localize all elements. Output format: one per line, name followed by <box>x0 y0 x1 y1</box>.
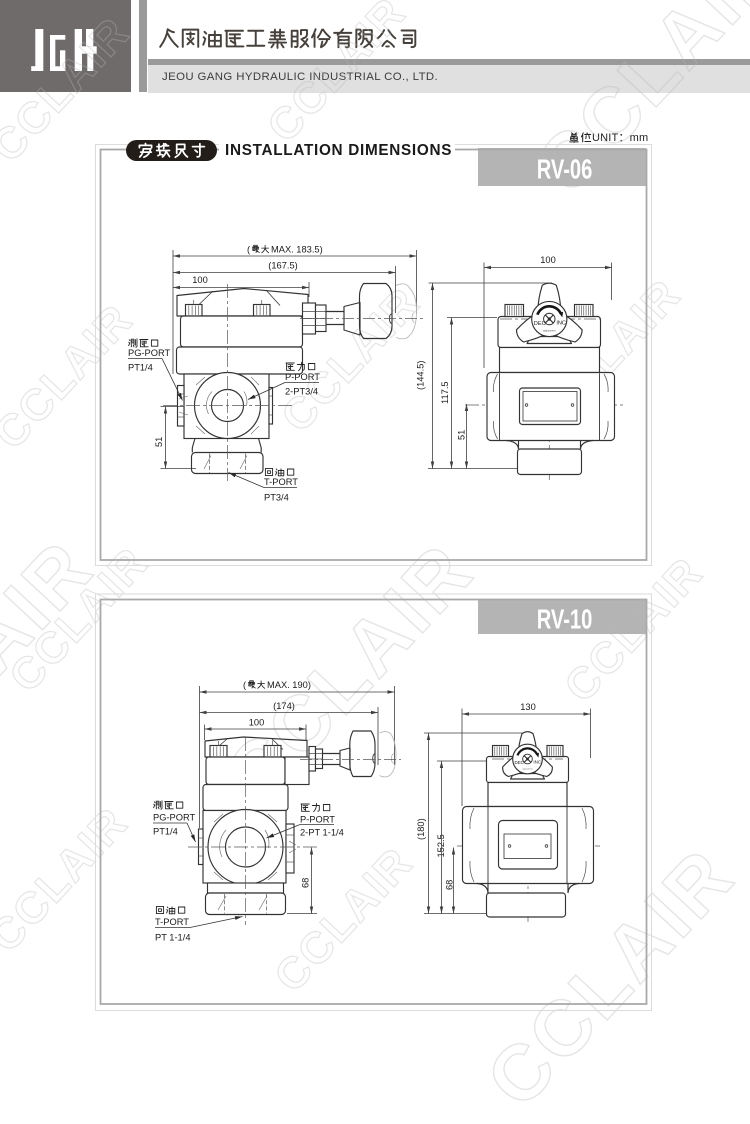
svg-text:2-PT 1-1/4: 2-PT 1-1/4 <box>300 828 344 838</box>
svg-text:P-PORT: P-PORT <box>300 815 335 825</box>
svg-text:68: 68 <box>445 880 455 890</box>
svg-text:PG-PORT: PG-PORT <box>153 813 196 823</box>
svg-text:68: 68 <box>301 878 311 888</box>
svg-text:(180): (180) <box>416 818 426 840</box>
svg-text:(: ( <box>243 680 247 690</box>
svg-text:PT1/4: PT1/4 <box>153 827 178 837</box>
svg-text:130: 130 <box>520 702 536 712</box>
svg-text:T-PORT: T-PORT <box>155 917 189 927</box>
svg-text:PT 1-1/4: PT 1-1/4 <box>155 933 191 943</box>
svg-text:MAX. 190): MAX. 190) <box>267 680 311 690</box>
svg-text:(174): (174) <box>273 701 295 711</box>
svg-text:152.5: 152.5 <box>436 834 446 857</box>
svg-text:DEC: DEC <box>514 760 524 765</box>
svg-text:adjustment: adjustment <box>522 767 533 770</box>
svg-text:100: 100 <box>249 718 265 728</box>
svg-text:RV-10: RV-10 <box>537 604 593 635</box>
svg-text:INC: INC <box>533 760 541 765</box>
